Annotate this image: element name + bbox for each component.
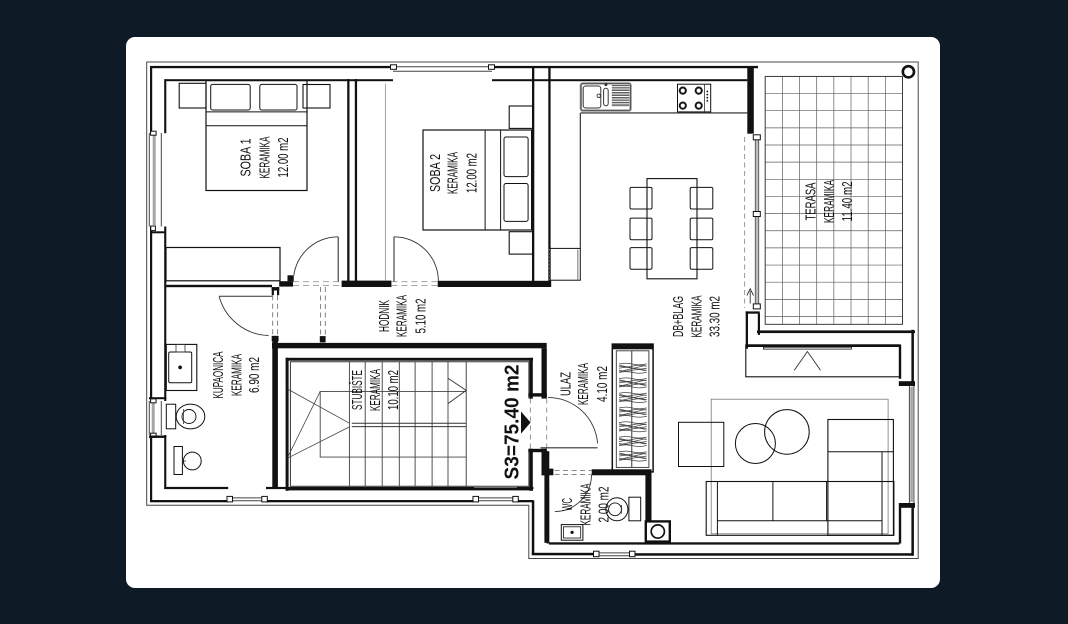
svg-text:5.10 m2: 5.10 m2: [412, 299, 429, 334]
svg-text:KERAMIKA: KERAMIKA: [688, 295, 705, 337]
svg-text:10.10 m2: 10.10 m2: [384, 370, 401, 410]
svg-text:KUPAONICA: KUPAONICA: [209, 351, 226, 398]
svg-text:KERAMIKA: KERAMIKA: [820, 180, 837, 223]
svg-text:WC: WC: [558, 498, 575, 511]
svg-text:11.40 m2: 11.40 m2: [838, 182, 855, 222]
svg-text:12.00 m2: 12.00 m2: [274, 138, 291, 178]
svg-text:ULAZ: ULAZ: [557, 372, 574, 396]
svg-text:4.10 m2: 4.10 m2: [593, 366, 610, 402]
svg-text:SOBA 1: SOBA 1: [237, 139, 254, 177]
svg-text:STUBIŠTE: STUBIŠTE: [348, 370, 365, 410]
svg-text:KERAMIKA: KERAMIKA: [228, 354, 245, 396]
svg-text:KERAMIKA: KERAMIKA: [256, 136, 273, 178]
svg-text:DB+BLAG: DB+BLAG: [669, 296, 686, 337]
svg-text:SOBA 2: SOBA 2: [426, 154, 443, 192]
svg-text:KERAMIKA: KERAMIKA: [366, 369, 383, 411]
svg-text:KERAMIKA: KERAMIKA: [393, 295, 410, 337]
svg-text:KERAMIKA: KERAMIKA: [574, 363, 591, 405]
svg-text:12.00 m2: 12.00 m2: [463, 153, 480, 193]
svg-text:6.90 m2: 6.90 m2: [245, 357, 262, 393]
svg-text:HODNIK: HODNIK: [375, 300, 392, 332]
svg-text:S3=75.40 m2: S3=75.40 m2: [501, 365, 523, 480]
svg-text:TERASA: TERASA: [802, 182, 819, 220]
svg-text:33.30 m2: 33.30 m2: [706, 296, 723, 337]
svg-text:2.00 m2: 2.00 m2: [595, 487, 612, 523]
svg-text:KERAMIKA: KERAMIKA: [577, 483, 594, 525]
svg-text:KERAMIKA: KERAMIKA: [444, 152, 461, 194]
